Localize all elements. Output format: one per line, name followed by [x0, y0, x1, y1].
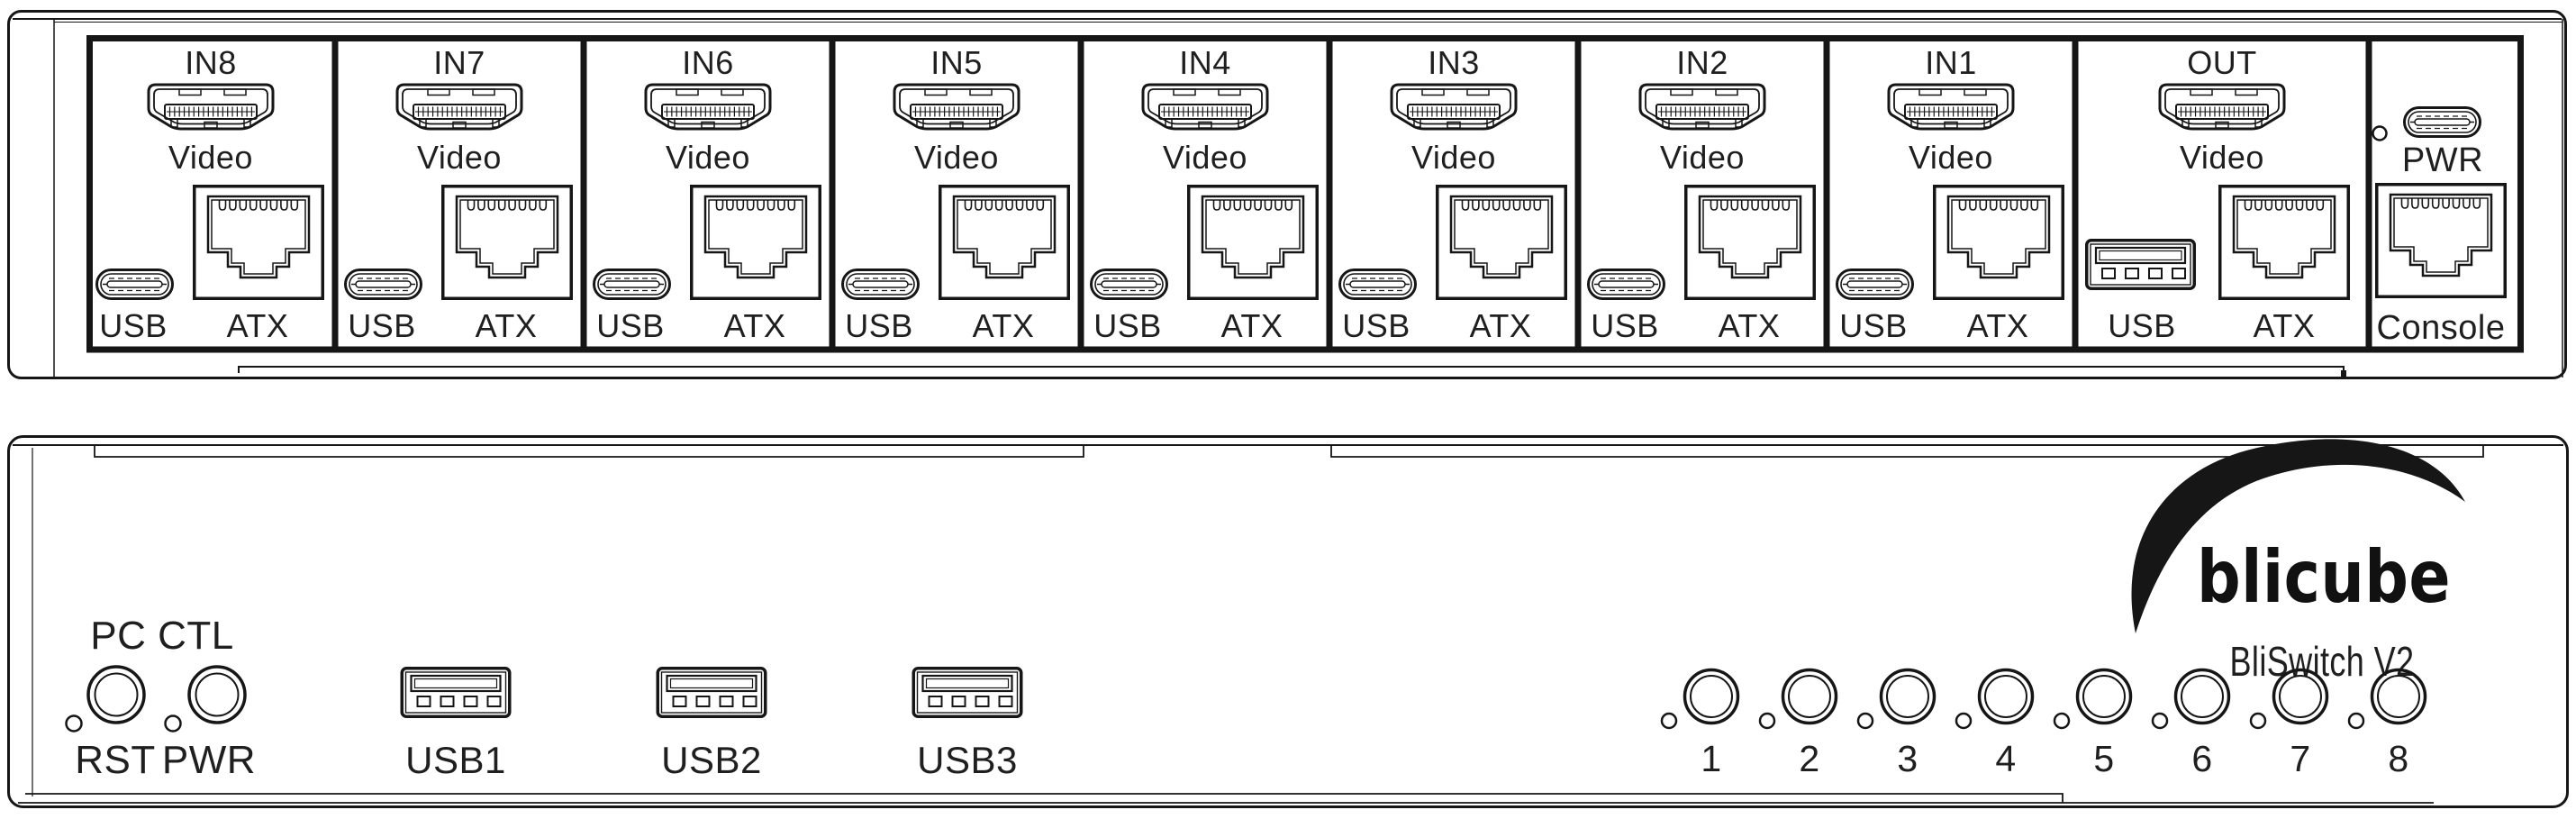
channel-number-label: 5: [2093, 738, 2114, 779]
rear-input-section-in4: IN4VideoUSBATX: [1092, 44, 1318, 344]
usb-c-port-icon: [1837, 270, 1913, 299]
video-port-label: Video: [1163, 139, 1247, 176]
channel-push-button-cap: [2181, 676, 2223, 717]
reset-led-indicator-dot: [67, 716, 82, 732]
rear-bottom-seam-tick: [2341, 370, 2346, 379]
channel-led-indicator-dot: [1662, 714, 1676, 728]
usb-a-port-icon: [658, 669, 766, 717]
channel-button-3: 3: [1858, 670, 1935, 780]
pc-ctl-group: PC CTL RST PWR: [67, 614, 257, 782]
channel-led-indicator-dot: [2349, 714, 2363, 728]
usb-port-label: USB1: [405, 739, 506, 781]
channel-push-button-cap: [2083, 676, 2125, 717]
input-label: IN6: [682, 44, 734, 81]
channel-button-6: 6: [2153, 670, 2229, 780]
front-usb-port-1: USB1: [402, 669, 510, 781]
front-usb-ports: USB1USB2USB3: [402, 669, 1021, 781]
rj45-atx-port-icon: [940, 187, 1069, 299]
reset-push-button-cap: [95, 674, 138, 716]
usb-c-power-port-icon: [2405, 108, 2481, 137]
channel-push-button: [1882, 670, 1935, 723]
channel-number-label: 6: [2191, 738, 2212, 779]
channel-push-button: [1783, 670, 1837, 723]
usb-c-port-icon: [1589, 270, 1664, 299]
hdmi-port-icon: [1889, 85, 2013, 129]
channel-push-button: [1685, 670, 1738, 723]
rj45-console-port-icon: [2377, 185, 2506, 297]
channel-number-label: 2: [1799, 738, 1819, 779]
brand-logo-text: blicube: [2197, 535, 2451, 619]
usb-port-label: USB: [1093, 307, 1162, 344]
rear-output-section: OUT Video USB ATX: [2087, 44, 2349, 344]
rj45-atx-port-icon: [1189, 187, 1318, 299]
console-port-label: Console: [2377, 309, 2506, 347]
power-push-button-cap: [196, 674, 239, 716]
usb-port-label: USB: [99, 307, 168, 344]
atx-port-label: ATX: [973, 307, 1035, 344]
usb-port-label: USB: [596, 307, 665, 344]
rj45-atx-port-icon: [443, 187, 572, 299]
channel-button-2: 2: [1760, 670, 1837, 780]
rear-input-section-in5: IN5VideoUSBATX: [843, 44, 1069, 344]
channel-led-indicator-dot: [1956, 714, 1971, 728]
usb-c-port-icon: [1340, 270, 1416, 299]
channel-led-indicator-dot: [2153, 714, 2167, 728]
input-label: IN5: [930, 44, 983, 81]
channel-button-7: 7: [2251, 670, 2327, 780]
power-push-button: [189, 667, 245, 723]
pc-ctl-label: PC CTL: [90, 614, 233, 658]
hdmi-port-icon: [1392, 85, 1516, 129]
video-port-label: Video: [417, 139, 502, 176]
usb-port-label: USB: [348, 307, 416, 344]
usb-port-label: USB: [1591, 307, 1659, 344]
power-button-label: PWR: [162, 738, 256, 782]
rj45-atx-port-icon: [195, 187, 323, 299]
model-label: BliSwitch V2: [2230, 638, 2415, 685]
rj45-atx-port-icon: [2220, 187, 2349, 299]
usb-port-label: USB: [2108, 307, 2176, 344]
input-label: IN4: [1179, 44, 1231, 81]
channel-push-button: [2078, 670, 2131, 723]
channel-button-1: 1: [1662, 670, 1738, 780]
front-panel: PC CTL RST PWR USB1USB2USB3 blicube BliS…: [9, 437, 2568, 807]
usb-a-port-icon: [2087, 241, 2195, 289]
channel-number-label: 3: [1897, 738, 1918, 779]
hdmi-port-icon: [1640, 85, 1764, 129]
channel-push-button-cap: [1887, 676, 1928, 717]
video-port-label: Video: [1411, 139, 1496, 176]
rj45-atx-port-icon: [1935, 187, 2064, 299]
rj45-atx-port-icon: [1438, 187, 1566, 299]
atx-port-label: ATX: [1719, 307, 1781, 344]
rj45-atx-port-icon: [1686, 187, 1815, 299]
atx-port-label: ATX: [1967, 307, 2029, 344]
video-port-label: Video: [666, 139, 750, 176]
atx-port-label: ATX: [1221, 307, 1283, 344]
rear-input-section-in2: IN2VideoUSBATX: [1589, 44, 1815, 344]
usb-c-port-icon: [594, 270, 670, 299]
usb-c-port-icon: [97, 270, 173, 299]
input-label: IN3: [1428, 44, 1480, 81]
video-port-label: Video: [168, 139, 253, 176]
usb-port-label: USB: [845, 307, 913, 344]
channel-number-label: 8: [2388, 738, 2408, 779]
rear-panel: IN8VideoUSBATXIN7VideoUSBATXIN6VideoUSBA…: [9, 12, 2566, 380]
video-port-label: Video: [1909, 139, 1993, 176]
front-top-seam-tab-1: [95, 445, 1084, 457]
channel-led-indicator-dot: [2251, 714, 2265, 728]
power-led-indicator-dot: [2373, 127, 2387, 141]
rear-input-section-in6: IN6VideoUSBATX: [594, 44, 821, 344]
power-port-label: PWR: [2402, 141, 2483, 179]
video-port-label: Video: [1660, 139, 1745, 176]
usb-c-port-icon: [843, 270, 919, 299]
channel-led-indicator-dot: [2054, 714, 2069, 728]
hdmi-port-icon: [149, 85, 273, 129]
reset-push-button: [88, 667, 144, 723]
channel-number-label: 1: [1701, 738, 1721, 779]
hdmi-port-icon: [2160, 85, 2284, 129]
usb-port-label: USB3: [917, 739, 1018, 781]
rear-power-console-section: PWR Console: [2373, 108, 2506, 348]
channel-push-button: [2176, 670, 2229, 723]
channel-led-indicator-dot: [1760, 714, 1774, 728]
rear-input-section-in1: IN1VideoUSBATX: [1837, 44, 2064, 344]
usb-port-label: USB: [1342, 307, 1410, 344]
channel-number-label: 4: [1995, 738, 2016, 779]
rear-input-section-in8: IN8VideoUSBATX: [97, 44, 323, 344]
video-port-label: Video: [2180, 139, 2264, 176]
output-label: OUT: [2187, 44, 2257, 81]
rear-input-section-in3: IN3VideoUSBATX: [1340, 44, 1566, 344]
kvm-switch-diagram: IN8VideoUSBATXIN7VideoUSBATXIN6VideoUSBA…: [0, 0, 2576, 819]
rj45-atx-port-icon: [692, 187, 821, 299]
channel-push-button-cap: [1985, 676, 2027, 717]
hdmi-port-icon: [646, 85, 770, 129]
video-port-label: Video: [914, 139, 999, 176]
hdmi-port-icon: [894, 85, 1019, 129]
atx-port-label: ATX: [227, 307, 289, 344]
input-label: IN1: [1925, 44, 1977, 81]
channel-push-button: [1980, 670, 2033, 723]
power-led-indicator-dot: [166, 716, 181, 732]
usb-c-port-icon: [1092, 270, 1167, 299]
usb-port-label: USB2: [661, 739, 762, 781]
input-label: IN8: [185, 44, 237, 81]
input-label: IN2: [1676, 44, 1728, 81]
front-usb-port-3: USB3: [913, 669, 1021, 781]
usb-a-port-icon: [913, 669, 1021, 717]
front-bottom-seam: [25, 794, 2063, 803]
usb-c-port-icon: [346, 270, 422, 299]
hdmi-port-icon: [1143, 85, 1267, 129]
rear-input-section-in7: IN7VideoUSBATX: [346, 44, 572, 344]
channel-number-label: 7: [2290, 738, 2310, 779]
usb-a-port-icon: [402, 669, 510, 717]
front-usb-port-2: USB2: [658, 669, 766, 781]
input-label: IN7: [433, 44, 485, 81]
channel-push-button-cap: [1691, 676, 1732, 717]
hdmi-port-icon: [397, 85, 522, 129]
channel-button-4: 4: [1956, 670, 2033, 780]
channel-button-8: 8: [2349, 670, 2426, 780]
channel-button-row: 12345678: [1662, 670, 2426, 780]
atx-port-label: ATX: [1470, 307, 1532, 344]
atx-port-label: ATX: [476, 307, 538, 344]
atx-port-label: ATX: [2254, 307, 2316, 344]
channel-led-indicator-dot: [1858, 714, 1873, 728]
channel-button-5: 5: [2054, 670, 2131, 780]
channel-push-button-cap: [1789, 676, 1830, 717]
reset-button-label: RST: [75, 738, 156, 782]
usb-port-label: USB: [1839, 307, 1908, 344]
brand-logo: blicube BliSwitch V2: [2132, 439, 2465, 685]
atx-port-label: ATX: [724, 307, 786, 344]
